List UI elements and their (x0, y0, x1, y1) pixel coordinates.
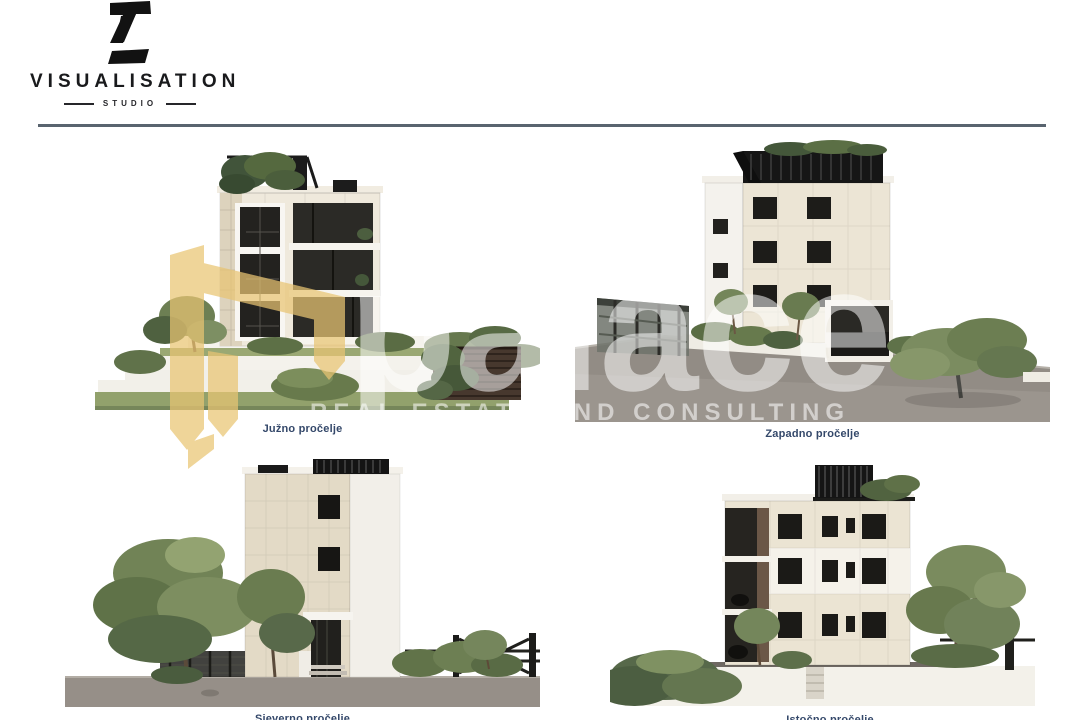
visualisation-sheet: VISUALISATION STUDIO (0, 0, 1080, 720)
south-elevation-image (65, 140, 540, 417)
figure-north-elevation: Sjeverno pročelje (65, 455, 540, 720)
logo-title: VISUALISATION (30, 71, 230, 93)
studio-logo: VISUALISATION STUDIO (30, 0, 230, 108)
caption-north: Sjeverno pročelje (65, 713, 540, 720)
z-logo-icon (107, 0, 153, 66)
header-divider (38, 124, 1046, 127)
caption-east: Istočno pročelje (610, 714, 1050, 720)
figure-west-elevation: Zapadno pročelje (575, 140, 1050, 440)
figure-east-elevation: Istočno pročelje (610, 460, 1050, 720)
logo-dash-left (64, 103, 94, 105)
logo-dash-right (166, 103, 196, 105)
west-elevation-image (575, 140, 1050, 422)
logo-subtitle: STUDIO (103, 99, 157, 108)
figure-south-elevation: Južno pročelje (65, 140, 540, 435)
north-elevation-image (65, 455, 540, 707)
caption-west: Zapadno pročelje (575, 428, 1050, 440)
caption-south: Južno pročelje (65, 423, 540, 435)
east-elevation-image (610, 460, 1050, 708)
